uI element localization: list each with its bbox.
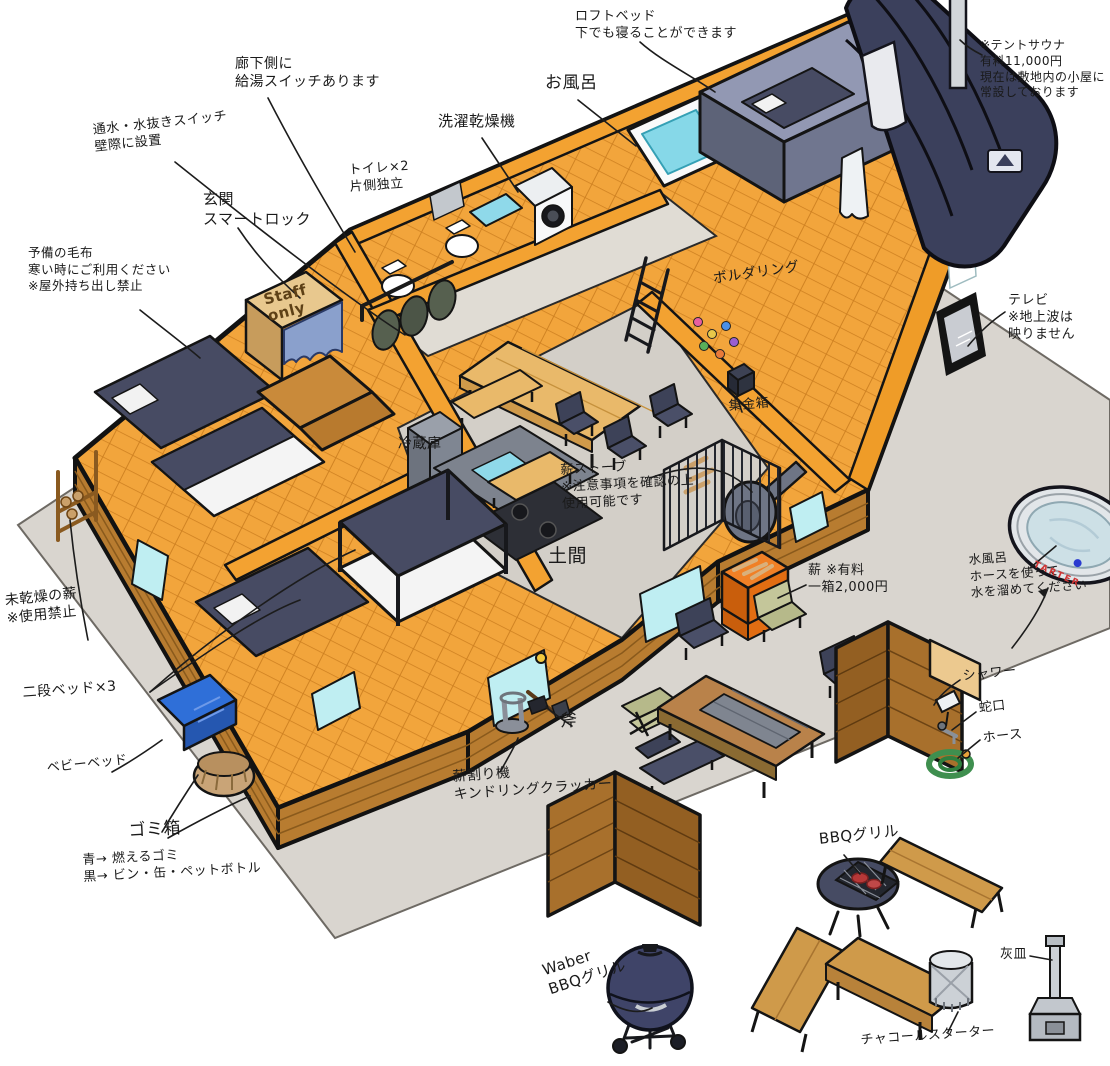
label-bath: お風呂 xyxy=(545,72,598,94)
charcoal-starter xyxy=(930,951,972,1012)
porch-lamp xyxy=(536,653,546,663)
label-doma: 土間 xyxy=(548,544,587,569)
label-tent-sauna: ※テントサウナ 有料11,000円 現在は敷地内の小屋に 常設しております xyxy=(980,38,1105,101)
floorplan-drawing xyxy=(0,0,1110,1066)
label-axe: 斧 xyxy=(560,710,578,732)
label-trash: ゴミ箱 xyxy=(128,817,182,842)
trash-basket xyxy=(194,752,254,796)
label-ashtray: 灰皿 xyxy=(1000,946,1027,963)
toilet-2 xyxy=(446,235,478,257)
label-fridge: 冷蔵庫 xyxy=(398,435,442,453)
label-firewood: 薪 ※有料 一箱2,000円 xyxy=(808,562,888,596)
label-entrance: 玄関 スマートロック xyxy=(203,190,311,230)
label-collection-box: 集金箱 xyxy=(728,394,770,415)
cabin-floorplan-illustration: ロフトベッド 下でも寝ることができます お風呂 洗濯乾燥機 トイレ×2 片側独立… xyxy=(0,0,1110,1066)
towel xyxy=(840,148,868,219)
label-toilets: トイレ×2 片側独立 xyxy=(348,158,411,196)
label-loft-bed: ロフトベッド 下でも寝ることができます xyxy=(575,8,737,42)
label-wet-firewood: 未乾燥の薪 ※使用禁止 xyxy=(4,584,80,628)
standing-ashtray xyxy=(1030,936,1080,1040)
label-faucet: 蛇口 xyxy=(978,697,1007,717)
label-spare-blankets: 予備の毛布 寒い時にご利用ください ※屋外持ち出し禁止 xyxy=(28,245,171,295)
label-washer-dryer: 洗濯乾燥機 xyxy=(438,112,516,132)
label-water-heater-switch: 廊下側に 給湯スイッチあります xyxy=(235,55,380,92)
label-wood-stove: 薪ストーブ ※注意事項を確認の上 使用可能です xyxy=(560,455,695,513)
label-tv: テレビ ※地上波は 映りません xyxy=(1008,292,1075,343)
label-cold-bath: 水風呂 ホースを使って 水を溜めてください xyxy=(968,544,1088,602)
